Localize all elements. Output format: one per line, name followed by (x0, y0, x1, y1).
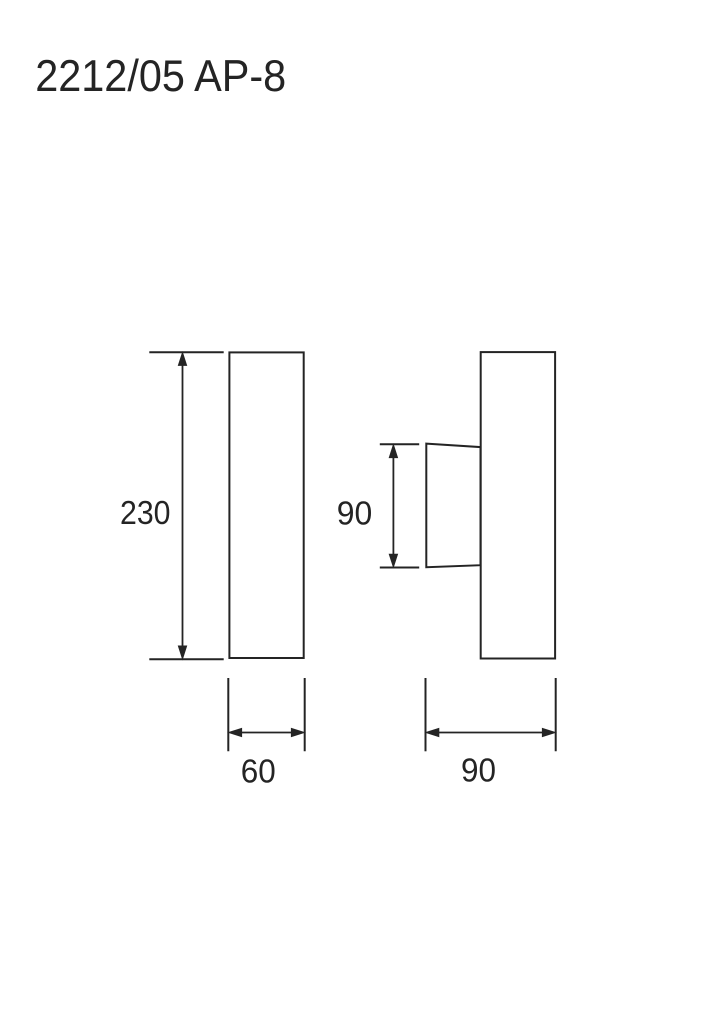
svg-text:230: 230 (120, 495, 171, 532)
svg-text:90: 90 (337, 496, 373, 533)
svg-text:60: 60 (241, 754, 276, 791)
svg-text:2212/05 AP-8: 2212/05 AP-8 (35, 52, 286, 101)
svg-text:90: 90 (461, 753, 496, 790)
